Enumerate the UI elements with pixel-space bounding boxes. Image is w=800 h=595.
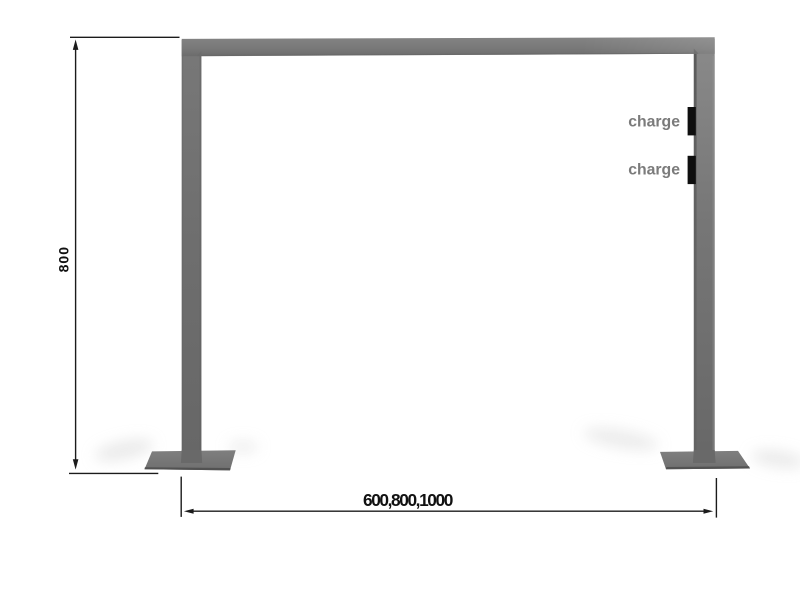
svg-text:charge: charge (628, 161, 680, 178)
svg-text:600,800,1000: 600,800,1000 (363, 490, 453, 510)
svg-text:charge: charge (628, 113, 680, 130)
svg-text:800: 800 (55, 246, 71, 272)
